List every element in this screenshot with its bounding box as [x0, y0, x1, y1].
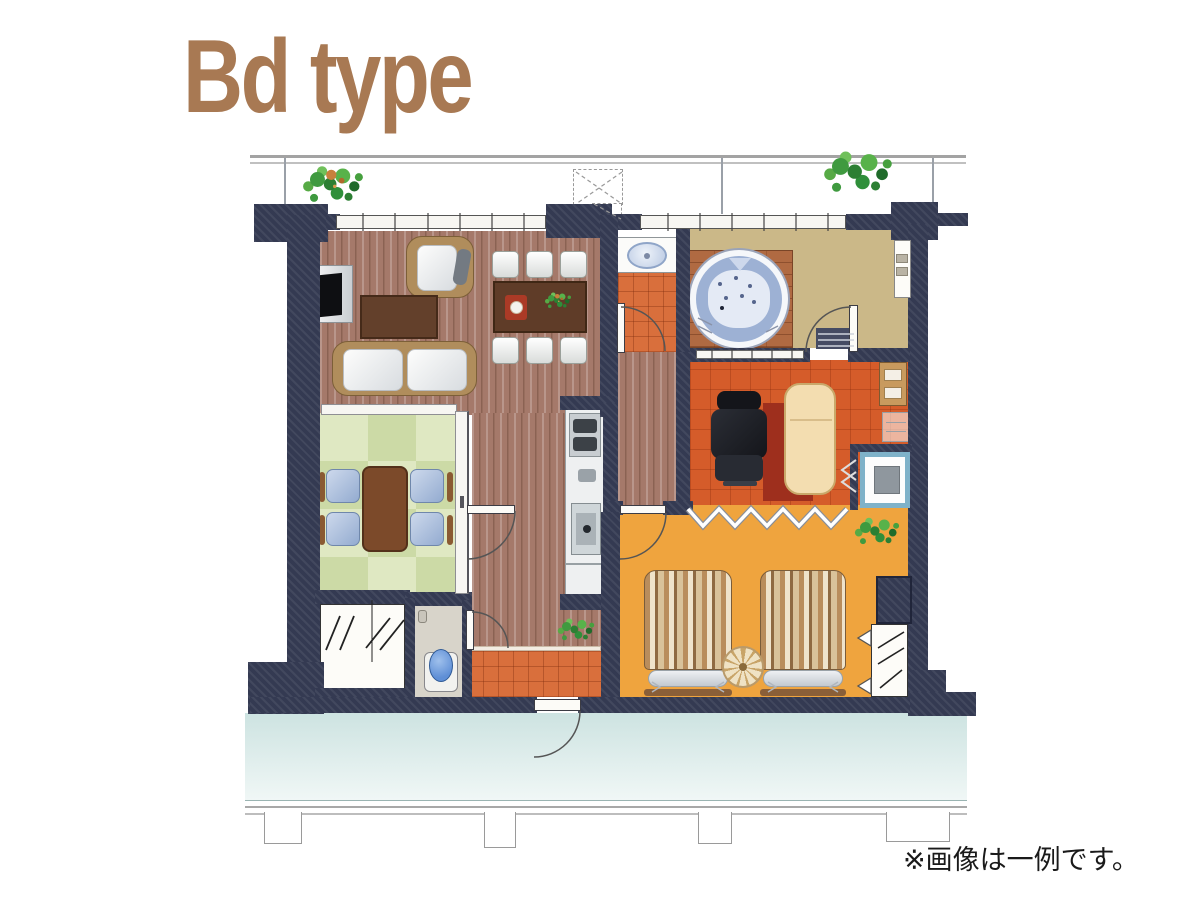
floor-chair: [326, 469, 360, 503]
massage-chair: [703, 391, 773, 487]
window-living: [336, 215, 546, 229]
site-outline-b: [245, 813, 967, 815]
site-outline-a: [245, 806, 967, 808]
coffee-table: [360, 295, 438, 339]
sink-drain: [583, 525, 591, 533]
door-leaf-toilet: [466, 610, 474, 650]
floor-chair: [410, 512, 444, 546]
floor-chair-armrest: [447, 515, 453, 545]
wall-entry-east: [601, 512, 620, 707]
wall-washroom-bath: [676, 227, 690, 354]
window-bath-partition: [696, 350, 804, 359]
bed-duvet: [644, 570, 732, 670]
inner-corridor-floor: [618, 352, 676, 510]
bedroom-closet: [871, 624, 908, 697]
floor-chair: [410, 469, 444, 503]
disclaimer-caption: ※画像は一例です。: [903, 838, 1139, 877]
toilet: [424, 652, 458, 692]
window-bath: [640, 215, 846, 229]
bathtub-water: [708, 270, 770, 328]
dining-chair: [560, 337, 587, 364]
wall-tatami-south: [315, 590, 410, 604]
door-leaf-bath: [849, 305, 858, 352]
sofa-cushion-left: [343, 349, 403, 391]
dining-chair: [526, 251, 553, 278]
wall-relax-west: [676, 352, 690, 510]
towel-shelf: [894, 240, 911, 298]
wall-right-step2: [908, 692, 976, 716]
balcony-divider-mid: [721, 158, 723, 214]
bed-footboard: [760, 689, 846, 696]
balcony-rail-inner: [250, 162, 966, 164]
storage-closet: [320, 604, 405, 690]
door-leaf-washroom: [617, 303, 625, 353]
shoji-handle: [460, 496, 464, 508]
floor-chair: [326, 512, 360, 546]
counter-divider: [566, 563, 604, 565]
wall-left: [287, 215, 320, 707]
armchair: [406, 236, 474, 298]
washing-machine-drum: [874, 466, 900, 494]
floorplan-page: Bd type ※画像は一例です。: [0, 0, 1200, 900]
dining-table: [493, 281, 587, 333]
dining-chair: [560, 251, 587, 278]
kitchen-counter: [565, 404, 605, 600]
wall-appliance-niche-top: [850, 444, 912, 452]
toilet-lid: [429, 649, 453, 682]
entrance-step: [468, 646, 601, 651]
tv-cabinet: [315, 265, 353, 323]
pillar-stub-1: [264, 812, 302, 844]
towel-stack: [896, 254, 908, 263]
vanity-drain: [644, 253, 650, 259]
pillar-stub-2: [484, 812, 516, 848]
balcony-rail: [250, 155, 966, 158]
desk-line: [886, 431, 906, 432]
wall-bottom-east: [578, 697, 910, 713]
towel-stack: [896, 267, 908, 276]
wall-spine: [600, 215, 618, 417]
bed-duvet: [760, 570, 846, 670]
bed: [760, 570, 846, 696]
bed-pillow: [648, 670, 728, 687]
door-leaf-living: [467, 505, 515, 514]
sofa-cushion-right: [407, 349, 467, 391]
massage-chair-headrest: [717, 391, 761, 411]
wall-top-c: [846, 214, 896, 230]
dining-plate: [510, 301, 523, 314]
desk-line: [886, 422, 906, 423]
dining-chair: [492, 251, 519, 278]
entrance-tile: [468, 650, 601, 697]
bed: [644, 570, 732, 696]
faucet-icon: [578, 469, 596, 482]
stove-burner: [573, 437, 597, 451]
washing-machine: [860, 452, 910, 508]
tub-jets: [718, 282, 722, 286]
wall-bottom-west: [250, 697, 537, 713]
bedroom-shaft-block: [876, 576, 912, 624]
wall-top-right-arm: [938, 213, 968, 226]
shelf-slot: [884, 369, 902, 381]
dining-chair: [526, 337, 553, 364]
pillar-stub-3: [698, 812, 732, 844]
door-leaf-entry: [534, 699, 581, 711]
armchair-cushion: [417, 245, 457, 291]
escape-hatch: [573, 169, 623, 205]
shoji-track-side: [455, 411, 469, 594]
kitchen-sink: [571, 503, 601, 555]
toilet-paper-holder: [418, 610, 427, 623]
massage-chair-base: [723, 481, 757, 486]
door-leaf-bedroom: [620, 505, 666, 514]
massage-chair-seat: [715, 455, 763, 481]
sofa: [332, 341, 477, 396]
wall-appliance-niche-left: [850, 444, 858, 510]
wall-shelf: [879, 362, 907, 406]
dining-chair: [492, 337, 519, 364]
lounger: [784, 383, 836, 495]
low-table: [362, 466, 408, 552]
nightstand: [722, 646, 764, 688]
massage-chair-back: [711, 409, 767, 459]
tv-screen-icon: [320, 273, 342, 317]
vanity-counter: [616, 237, 678, 273]
nightstand-center: [739, 663, 747, 671]
wall-bedroom-north-b: [663, 501, 693, 515]
shoji-track-top: [321, 404, 457, 415]
washroom-floor: [618, 270, 676, 352]
lounger-seam: [790, 419, 832, 421]
bed-footboard: [644, 689, 732, 696]
floor-chair-armrest: [447, 472, 453, 502]
stove-burner: [573, 419, 597, 433]
common-corridor: [245, 713, 967, 801]
page-title: Bd type: [183, 18, 471, 137]
sketch-desk: [882, 412, 909, 442]
bed-pillow: [763, 670, 843, 687]
shelf-slot: [884, 387, 902, 399]
